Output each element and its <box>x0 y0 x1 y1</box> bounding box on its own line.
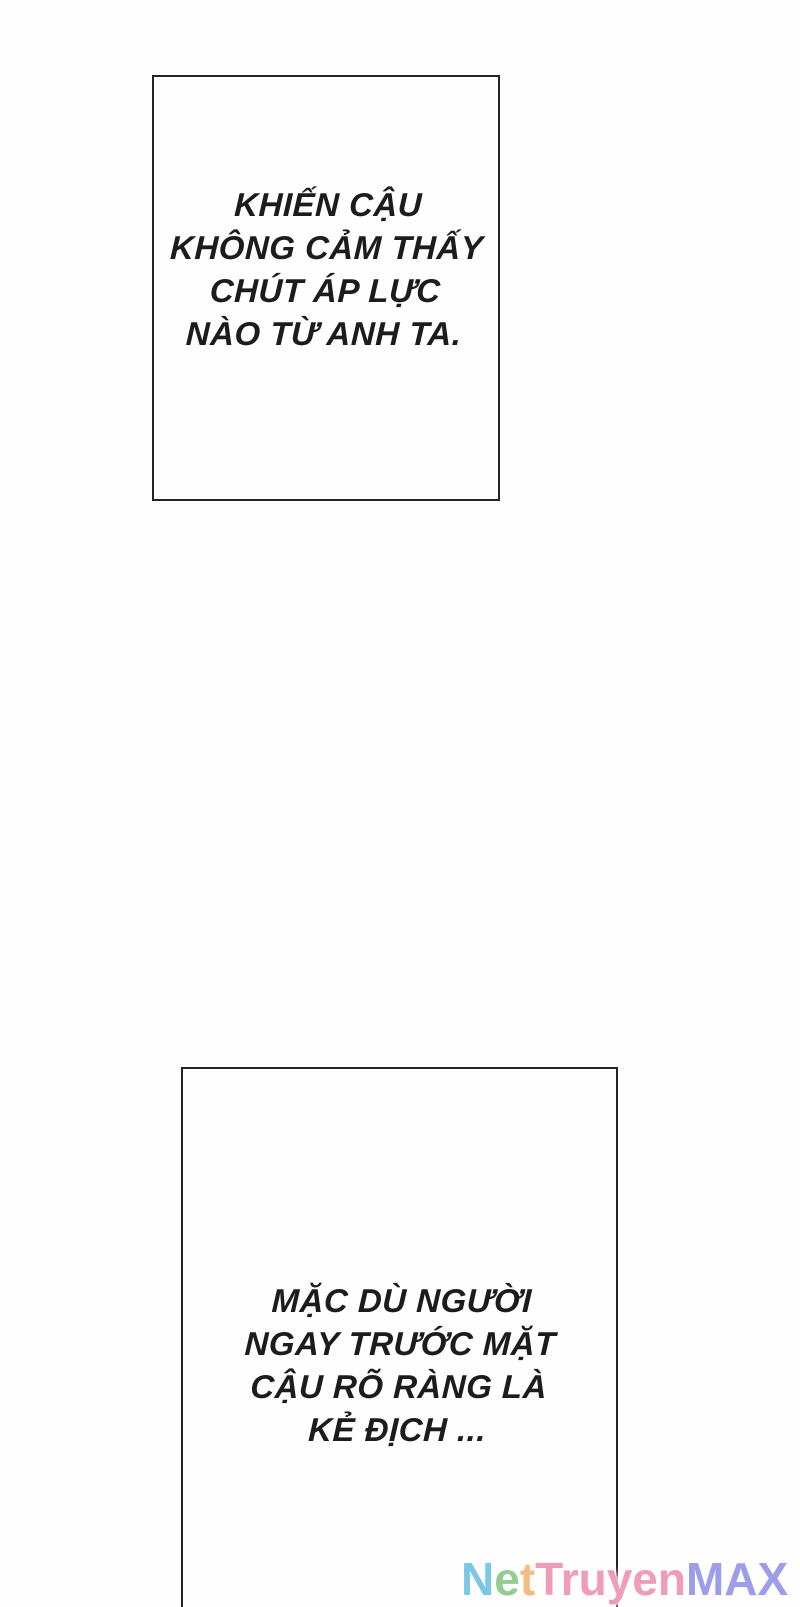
watermark-segment: Truyen <box>535 1553 686 1605</box>
dialogue-line: NGAY TRƯỚC MẶT <box>183 1322 618 1365</box>
watermark-segment: MAX <box>686 1553 788 1605</box>
dialogue-text-1: KHIẾN CẬU KHÔNG CẢM THẤY CHÚT ÁP LỰC NÀO… <box>151 183 501 355</box>
dialogue-line: KHIẾN CẬU <box>156 183 502 226</box>
nettruyenmax-watermark: NetTruyenMAX <box>461 1556 788 1602</box>
dialogue-line: KHÔNG CẢM THẤY <box>154 226 500 269</box>
watermark-segment: e <box>494 1553 520 1605</box>
dialogue-line: KẺ ĐỊCH ... <box>180 1408 615 1451</box>
dialogue-line: NÀO TỪ ANH TA. <box>151 312 497 355</box>
dialogue-line: CHÚT ÁP LỰC <box>152 269 498 312</box>
dialogue-line: CẬU RÕ RÀNG LÀ <box>181 1365 616 1408</box>
narration-panel-1: KHIẾN CẬU KHÔNG CẢM THẤY CHÚT ÁP LỰC NÀO… <box>152 75 500 501</box>
watermark-segment: t <box>520 1553 535 1605</box>
dialogue-line: MẶC DÙ NGƯỜI <box>185 1279 620 1322</box>
dialogue-text-2: MẶC DÙ NGƯỜI NGAY TRƯỚC MẶT CẬU RÕ RÀNG … <box>180 1279 619 1451</box>
comic-page: KHIẾN CẬU KHÔNG CẢM THẤY CHÚT ÁP LỰC NÀO… <box>0 0 800 1607</box>
narration-panel-2: MẶC DÙ NGƯỜI NGAY TRƯỚC MẶT CẬU RÕ RÀNG … <box>181 1067 618 1607</box>
watermark-segment: N <box>461 1553 494 1605</box>
